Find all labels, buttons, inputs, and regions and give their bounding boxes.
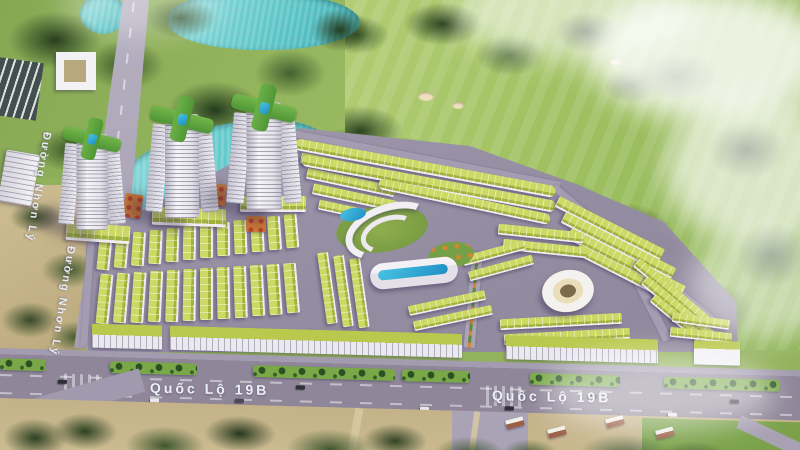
townhouse-row xyxy=(148,230,163,265)
shophouse-block xyxy=(92,324,162,350)
townhouse-row xyxy=(233,266,248,318)
townhouse-row xyxy=(217,267,231,319)
rooftop-pool xyxy=(378,263,449,280)
shed-building xyxy=(547,425,567,438)
courtyard xyxy=(64,60,86,82)
car xyxy=(58,380,67,384)
car xyxy=(505,406,514,410)
townhouse-row xyxy=(183,269,197,321)
residential-tower xyxy=(59,121,125,242)
townhouse-row xyxy=(131,232,146,267)
sand-path xyxy=(345,408,364,450)
townhouse-row xyxy=(148,271,164,323)
south-road xyxy=(452,411,528,450)
median-strip xyxy=(253,365,395,381)
highway-name-label-right: Quốc Lộ 19B xyxy=(492,387,611,405)
shophouse-block xyxy=(694,340,740,365)
sand-bunker xyxy=(418,92,434,101)
townhouse-row xyxy=(165,270,180,322)
highway-name-label-left: Quốc Lộ 19B xyxy=(150,380,269,398)
shophouse-block xyxy=(506,335,658,363)
car xyxy=(235,399,244,403)
car xyxy=(730,399,739,403)
residential-tower xyxy=(146,100,218,232)
townhouse-row xyxy=(200,268,213,320)
shed-building xyxy=(605,415,625,428)
median-strip xyxy=(664,377,780,392)
car xyxy=(296,385,305,389)
median-strip xyxy=(0,358,46,371)
aerial-masterplan-render: Quốc Lộ 19B Quốc Lộ 19B Đường Nhơn Lý Đư… xyxy=(0,0,800,450)
lake xyxy=(168,0,360,50)
median-strip xyxy=(530,373,620,388)
residential-tower xyxy=(227,88,301,224)
sand-bunker xyxy=(610,58,622,65)
median-strip xyxy=(402,369,470,383)
u-shaped-building xyxy=(56,52,96,90)
sand-bunker xyxy=(452,102,464,109)
townhouse-row xyxy=(250,265,266,317)
